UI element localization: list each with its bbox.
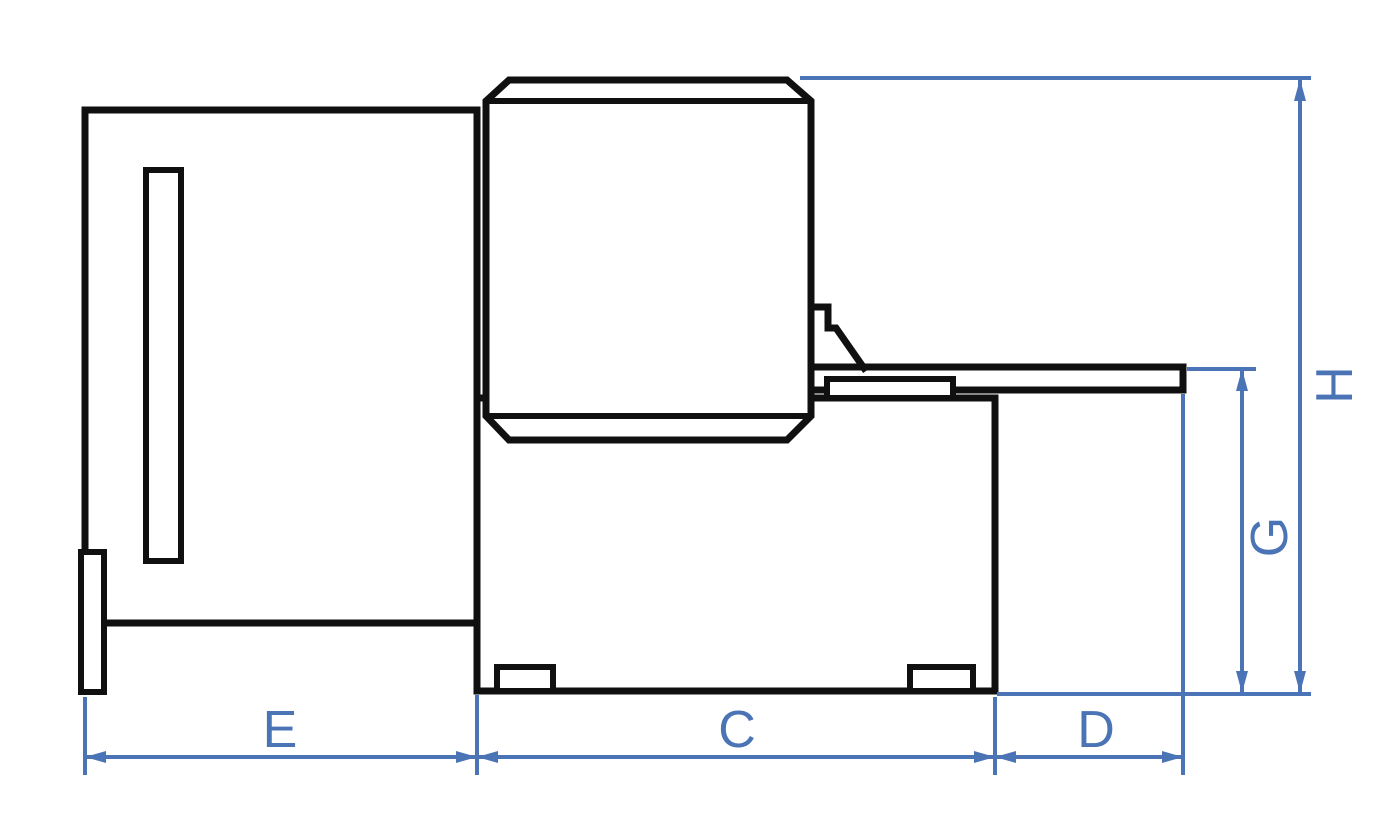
dimension-label-c: C xyxy=(718,701,756,759)
dimension-label-d: D xyxy=(1077,701,1115,759)
machine-side-view-diagram: E C D G H xyxy=(0,0,1398,838)
dimension-label-e: E xyxy=(263,701,298,759)
cabinet-foot-right xyxy=(910,667,973,691)
dimension-label-h: H xyxy=(1306,366,1364,404)
panel-foot xyxy=(81,552,104,692)
top-box xyxy=(486,80,811,440)
dimension-label-g: G xyxy=(1241,517,1299,557)
dimension-drawing-canvas: E C D G H xyxy=(0,0,1398,838)
table-mount-plate xyxy=(827,379,953,398)
panel-slot xyxy=(146,170,181,561)
cabinet-foot-left xyxy=(497,667,553,691)
